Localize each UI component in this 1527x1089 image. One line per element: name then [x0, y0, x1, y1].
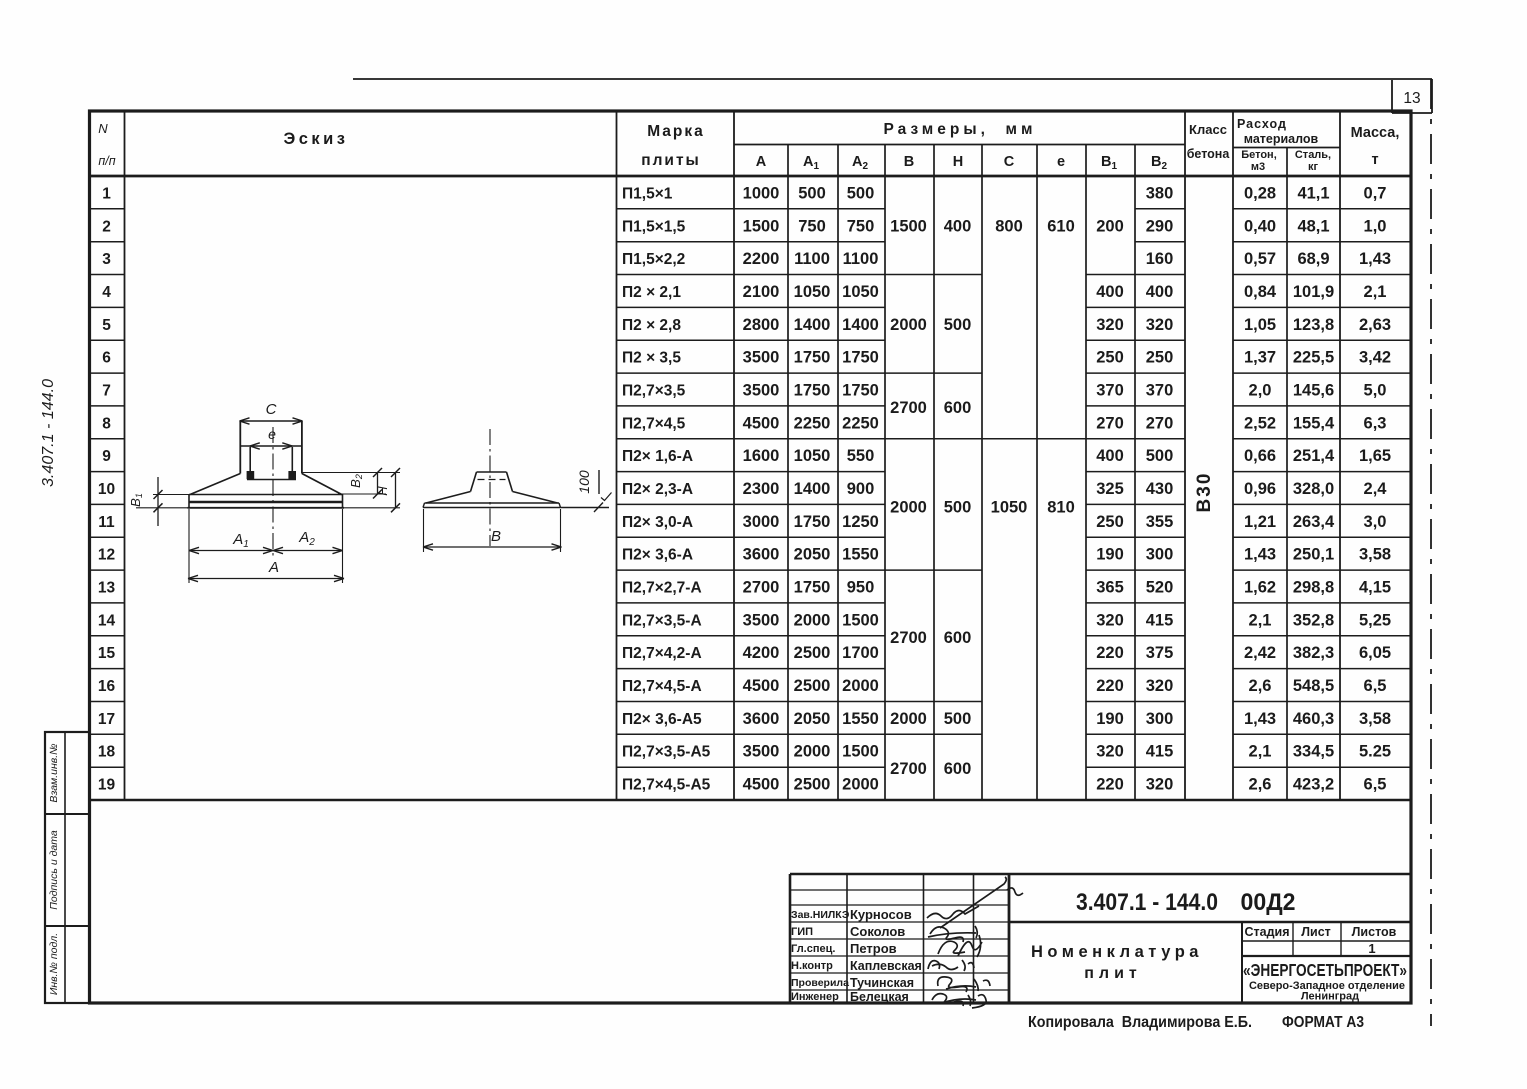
svg-text:750: 750: [798, 217, 826, 235]
svg-text:600: 600: [944, 399, 972, 417]
svg-text:м3: м3: [1251, 161, 1265, 173]
svg-text:6,5: 6,5: [1364, 776, 1387, 794]
svg-text:380: 380: [1146, 184, 1174, 202]
svg-text:14: 14: [98, 612, 116, 629]
svg-text:2,52: 2,52: [1244, 414, 1276, 432]
svg-text:Взам.инв.№: Взам.инв.№: [48, 743, 60, 802]
svg-text:225,5: 225,5: [1293, 349, 1334, 367]
svg-text:2700: 2700: [890, 760, 927, 778]
svg-text:П2,7×4,5-А: П2,7×4,5-А: [622, 678, 702, 695]
svg-text:355: 355: [1146, 513, 1174, 531]
svg-text:41,1: 41,1: [1297, 184, 1329, 202]
svg-text:П1,5×1,5: П1,5×1,5: [622, 218, 686, 235]
svg-text:Эскиз: Эскиз: [283, 130, 348, 148]
svg-text:П2× 3,6-А: П2× 3,6-А: [622, 547, 693, 564]
svg-text:В: В: [491, 528, 501, 545]
svg-text:1: 1: [1368, 941, 1375, 956]
svg-text:1,05: 1,05: [1244, 316, 1276, 334]
svg-text:П2,7×3,5: П2,7×3,5: [622, 382, 686, 399]
svg-text:бетона: бетона: [1187, 147, 1231, 161]
svg-text:19: 19: [98, 777, 116, 794]
svg-text:1250: 1250: [842, 513, 879, 531]
svg-text:220: 220: [1096, 677, 1124, 695]
svg-text:190: 190: [1096, 710, 1124, 728]
svg-text:П2,7×4,5-А5: П2,7×4,5-А5: [622, 777, 711, 794]
svg-text:3500: 3500: [743, 381, 780, 399]
svg-text:3500: 3500: [743, 349, 780, 367]
svg-text:П2,7×4,2-А: П2,7×4,2-А: [622, 645, 702, 662]
svg-text:Соколов: Соколов: [850, 924, 905, 939]
svg-text:Ленинград: Ленинград: [1301, 991, 1359, 1003]
svg-text:1,0: 1,0: [1364, 217, 1387, 235]
svg-text:145,6: 145,6: [1293, 381, 1334, 399]
svg-text:15: 15: [98, 645, 116, 662]
svg-text:2,0: 2,0: [1249, 381, 1272, 399]
svg-text:1,21: 1,21: [1244, 513, 1276, 531]
svg-text:5.25: 5.25: [1359, 743, 1391, 761]
svg-text:1: 1: [102, 185, 111, 202]
svg-text:1500: 1500: [842, 611, 879, 629]
svg-text:1550: 1550: [842, 546, 879, 564]
svg-text:П2,7×3,5-А5: П2,7×3,5-А5: [622, 744, 711, 761]
svg-text:423,2: 423,2: [1293, 776, 1334, 794]
svg-text:328,0: 328,0: [1293, 480, 1334, 498]
svg-text:300: 300: [1146, 546, 1174, 564]
svg-text:Гл.спец.: Гл.спец.: [791, 943, 835, 955]
svg-text:600: 600: [944, 629, 972, 647]
svg-text:Зав.НИЛКЭ: Зав.НИЛКЭ: [791, 909, 850, 921]
svg-text:18: 18: [98, 744, 116, 761]
svg-text:3600: 3600: [743, 710, 780, 728]
svg-text:320: 320: [1146, 776, 1174, 794]
svg-text:251,4: 251,4: [1293, 447, 1335, 465]
svg-text:П2 × 2,1: П2 × 2,1: [622, 284, 681, 301]
svg-text:334,5: 334,5: [1293, 743, 1334, 761]
svg-text:10: 10: [98, 481, 115, 498]
svg-text:2500: 2500: [794, 644, 831, 662]
svg-text:430: 430: [1146, 480, 1174, 498]
svg-text:400: 400: [1146, 283, 1174, 301]
svg-text:220: 220: [1096, 776, 1124, 794]
svg-text:2100: 2100: [743, 283, 780, 301]
svg-text:370: 370: [1146, 381, 1174, 399]
svg-text:С: С: [266, 401, 277, 418]
svg-text:Н: Н: [375, 486, 390, 496]
svg-text:0,28: 0,28: [1244, 184, 1276, 202]
svg-text:Белецкая: Белецкая: [850, 990, 909, 1004]
svg-text:1,37: 1,37: [1244, 349, 1276, 367]
svg-text:400: 400: [1096, 447, 1124, 465]
svg-text:Подпись и дата: Подпись и дата: [48, 830, 60, 910]
svg-text:2050: 2050: [794, 546, 831, 564]
svg-text:1750: 1750: [794, 381, 831, 399]
svg-text:48,1: 48,1: [1297, 217, 1329, 235]
svg-text:Инв.№ подл.: Инв.№ подл.: [48, 933, 60, 995]
svg-text:68,9: 68,9: [1297, 250, 1329, 268]
svg-text:е: е: [268, 426, 276, 442]
svg-text:4200: 4200: [743, 644, 780, 662]
svg-text:500: 500: [1146, 447, 1174, 465]
svg-text:П2,7×4,5: П2,7×4,5: [622, 415, 686, 432]
svg-text:2700: 2700: [890, 399, 927, 417]
svg-text:1700: 1700: [842, 644, 879, 662]
svg-text:325: 325: [1096, 480, 1124, 498]
svg-text:2,4: 2,4: [1364, 480, 1388, 498]
svg-text:155,4: 155,4: [1293, 414, 1335, 432]
svg-text:ФОРМАТ А3: ФОРМАТ А3: [1282, 1014, 1364, 1031]
svg-text:2000: 2000: [890, 316, 927, 334]
svg-text:1500: 1500: [743, 217, 780, 235]
svg-text:500: 500: [798, 184, 826, 202]
svg-text:1,62: 1,62: [1244, 579, 1276, 597]
svg-text:1,43: 1,43: [1244, 546, 1276, 564]
svg-text:16: 16: [98, 678, 116, 695]
svg-text:2,6: 2,6: [1249, 776, 1272, 794]
svg-text:Стадия: Стадия: [1244, 925, 1289, 939]
svg-text:382,3: 382,3: [1293, 644, 1334, 662]
svg-text:460,3: 460,3: [1293, 710, 1334, 728]
svg-text:N: N: [98, 121, 108, 136]
svg-text:0,40: 0,40: [1244, 217, 1276, 235]
svg-text:320: 320: [1146, 677, 1174, 695]
svg-text:3: 3: [102, 251, 111, 268]
svg-text:263,4: 263,4: [1293, 513, 1335, 531]
svg-text:плит: плит: [1084, 965, 1142, 982]
svg-text:2250: 2250: [794, 414, 831, 432]
svg-text:п/п: п/п: [98, 154, 115, 168]
svg-text:«ЭНЕРГОСЕТЬПРОЕКТ»: «ЭНЕРГОСЕТЬПРОЕКТ»: [1243, 960, 1407, 980]
svg-text:220: 220: [1096, 644, 1124, 662]
svg-text:2500: 2500: [794, 677, 831, 695]
svg-text:1550: 1550: [842, 710, 879, 728]
svg-text:В: В: [904, 154, 914, 170]
svg-text:Петров: Петров: [850, 941, 897, 956]
svg-text:250,1: 250,1: [1293, 546, 1334, 564]
svg-text:1,65: 1,65: [1359, 447, 1391, 465]
svg-text:2,42: 2,42: [1244, 644, 1276, 662]
svg-text:А: А: [756, 154, 767, 170]
svg-text:4: 4: [102, 284, 111, 301]
svg-text:520: 520: [1146, 579, 1174, 597]
svg-text:5,25: 5,25: [1359, 611, 1391, 629]
svg-text:Н: Н: [953, 154, 963, 170]
svg-text:0,57: 0,57: [1244, 250, 1276, 268]
svg-text:П2× 3,6-А5: П2× 3,6-А5: [622, 711, 702, 728]
svg-text:П1,5×1: П1,5×1: [622, 185, 673, 202]
svg-text:П2,7×2,7-А: П2,7×2,7-А: [622, 580, 702, 597]
svg-text:1,43: 1,43: [1244, 710, 1276, 728]
svg-text:1,43: 1,43: [1359, 250, 1391, 268]
svg-text:1100: 1100: [843, 250, 879, 268]
svg-text:П1,5×2,2: П1,5×2,2: [622, 251, 685, 268]
svg-text:1050: 1050: [794, 447, 831, 465]
svg-text:548,5: 548,5: [1293, 677, 1334, 695]
svg-text:3,0: 3,0: [1364, 513, 1387, 531]
svg-text:2250: 2250: [842, 414, 879, 432]
svg-text:4,15: 4,15: [1359, 579, 1391, 597]
svg-text:0,66: 0,66: [1244, 447, 1276, 465]
svg-text:352,8: 352,8: [1293, 611, 1334, 629]
svg-text:Проверила: Проверила: [791, 977, 849, 989]
svg-text:500: 500: [944, 710, 972, 728]
svg-text:400: 400: [1096, 283, 1124, 301]
svg-text:500: 500: [847, 184, 875, 202]
svg-text:2500: 2500: [794, 776, 831, 794]
svg-text:2000: 2000: [842, 677, 879, 695]
svg-text:9: 9: [102, 448, 111, 465]
svg-text:160: 160: [1146, 250, 1174, 268]
svg-text:1100: 1100: [794, 250, 830, 268]
svg-text:365: 365: [1096, 579, 1124, 597]
svg-text:е: е: [1057, 154, 1065, 170]
svg-text:1400: 1400: [794, 316, 831, 334]
svg-text:Инженер: Инженер: [791, 991, 839, 1003]
svg-text:1600: 1600: [743, 447, 780, 465]
svg-text:ГИП: ГИП: [791, 926, 813, 938]
svg-text:2,1: 2,1: [1249, 743, 1272, 761]
svg-text:6,5: 6,5: [1364, 677, 1387, 695]
svg-text:т: т: [1371, 152, 1378, 168]
svg-text:3,42: 3,42: [1359, 349, 1391, 367]
svg-text:П2 × 2,8: П2 × 2,8: [622, 317, 681, 334]
svg-text:400: 400: [944, 217, 972, 235]
svg-text:С: С: [1004, 154, 1015, 170]
svg-text:1500: 1500: [890, 217, 927, 235]
svg-text:3,58: 3,58: [1359, 710, 1391, 728]
svg-text:3.407.1 - 144.0: 3.407.1 - 144.0: [40, 379, 57, 487]
svg-text:5,0: 5,0: [1364, 381, 1387, 399]
svg-text:2000: 2000: [794, 743, 831, 761]
svg-text:1400: 1400: [842, 316, 879, 334]
svg-text:2000: 2000: [842, 776, 879, 794]
svg-text:370: 370: [1096, 381, 1124, 399]
svg-text:4500: 4500: [743, 677, 780, 695]
svg-text:610: 610: [1047, 217, 1075, 235]
svg-text:1750: 1750: [842, 381, 879, 399]
svg-text:7: 7: [102, 382, 111, 399]
svg-text:250: 250: [1096, 513, 1124, 531]
svg-text:2700: 2700: [890, 629, 927, 647]
svg-text:Номенклатура: Номенклатура: [1031, 943, 1203, 961]
svg-text:123,8: 123,8: [1293, 316, 1334, 334]
svg-text:8: 8: [102, 415, 111, 432]
svg-text:100: 100: [576, 470, 592, 494]
svg-text:3,58: 3,58: [1359, 546, 1391, 564]
svg-text:1000: 1000: [743, 184, 780, 202]
svg-text:250: 250: [1146, 349, 1174, 367]
svg-text:11: 11: [98, 514, 115, 531]
svg-text:800: 800: [995, 217, 1023, 235]
svg-text:300: 300: [1146, 710, 1174, 728]
svg-text:0,7: 0,7: [1364, 184, 1387, 202]
svg-text:6: 6: [102, 350, 111, 367]
svg-text:0,84: 0,84: [1244, 283, 1277, 301]
svg-text:Курносов: Курносов: [850, 907, 912, 922]
svg-text:плиты: плиты: [641, 152, 701, 169]
svg-text:П2,7×3,5-А: П2,7×3,5-А: [622, 612, 702, 629]
svg-text:3500: 3500: [743, 743, 780, 761]
svg-text:270: 270: [1146, 414, 1174, 432]
svg-text:950: 950: [847, 579, 875, 597]
svg-text:Каплевская: Каплевская: [850, 959, 922, 973]
svg-text:200: 200: [1096, 217, 1124, 235]
svg-text:1750: 1750: [794, 513, 831, 531]
svg-text:1400: 1400: [794, 480, 831, 498]
svg-text:2,63: 2,63: [1359, 316, 1391, 334]
svg-text:2300: 2300: [743, 480, 780, 498]
svg-text:298,8: 298,8: [1293, 579, 1334, 597]
svg-text:750: 750: [847, 217, 875, 235]
svg-text:4500: 4500: [743, 414, 780, 432]
svg-text:375: 375: [1146, 644, 1174, 662]
svg-text:3000: 3000: [743, 513, 780, 531]
svg-text:Лист: Лист: [1301, 925, 1331, 939]
svg-text:материалов: материалов: [1244, 132, 1319, 146]
svg-text:00Д2: 00Д2: [1241, 889, 1296, 916]
svg-text:2050: 2050: [794, 710, 831, 728]
svg-text:Листов: Листов: [1352, 925, 1397, 939]
svg-text:1050: 1050: [794, 283, 831, 301]
svg-text:1050: 1050: [991, 498, 1028, 516]
svg-text:Расход: Расход: [1237, 117, 1287, 131]
svg-text:320: 320: [1146, 316, 1174, 334]
svg-text:550: 550: [847, 447, 875, 465]
svg-text:190: 190: [1096, 546, 1124, 564]
svg-text:3500: 3500: [743, 611, 780, 629]
svg-text:1500: 1500: [842, 743, 879, 761]
svg-text:12: 12: [98, 547, 115, 564]
svg-text:П2× 2,3-А: П2× 2,3-А: [622, 481, 693, 498]
svg-text:0,96: 0,96: [1244, 480, 1276, 498]
svg-text:2000: 2000: [890, 710, 927, 728]
svg-text:2200: 2200: [743, 250, 780, 268]
svg-text:2: 2: [102, 218, 111, 235]
svg-text:3.407.1 - 144.0: 3.407.1 - 144.0: [1076, 889, 1218, 916]
svg-text:2,1: 2,1: [1364, 283, 1387, 301]
svg-text:810: 810: [1047, 498, 1075, 516]
svg-text:Сталь,: Сталь,: [1295, 149, 1331, 161]
svg-text:13: 13: [98, 580, 116, 597]
svg-text:Тучинская: Тучинская: [850, 976, 914, 990]
svg-text:Класс: Класс: [1189, 122, 1227, 137]
svg-text:2000: 2000: [794, 611, 831, 629]
svg-text:кг: кг: [1308, 161, 1319, 173]
svg-text:Бетон,: Бетон,: [1241, 149, 1277, 161]
svg-text:415: 415: [1146, 743, 1174, 761]
svg-text:17: 17: [98, 711, 115, 728]
svg-text:500: 500: [944, 498, 972, 516]
svg-text:250: 250: [1096, 349, 1124, 367]
svg-text:1750: 1750: [842, 349, 879, 367]
svg-text:А: А: [268, 559, 279, 576]
svg-text:500: 500: [944, 316, 972, 334]
svg-text:Размеры, мм: Размеры, мм: [884, 121, 1037, 138]
svg-text:290: 290: [1146, 217, 1174, 235]
svg-text:1750: 1750: [794, 349, 831, 367]
svg-text:4500: 4500: [743, 776, 780, 794]
svg-text:П2× 1,6-А: П2× 1,6-А: [622, 448, 693, 465]
svg-text:2,6: 2,6: [1249, 677, 1272, 695]
svg-text:600: 600: [944, 760, 972, 778]
svg-text:1750: 1750: [794, 579, 831, 597]
svg-text:270: 270: [1096, 414, 1124, 432]
svg-text:2800: 2800: [743, 316, 780, 334]
svg-text:П2 × 3,5: П2 × 3,5: [622, 350, 681, 367]
svg-text:П2× 3,0-А: П2× 3,0-А: [622, 514, 693, 531]
svg-text:13: 13: [1403, 90, 1420, 107]
svg-text:2000: 2000: [890, 498, 927, 516]
svg-text:Масса,: Масса,: [1351, 125, 1400, 141]
svg-text:Марка: Марка: [647, 123, 705, 140]
svg-text:3600: 3600: [743, 546, 780, 564]
svg-text:1050: 1050: [842, 283, 879, 301]
svg-text:320: 320: [1096, 743, 1124, 761]
svg-text:В30: В30: [1194, 472, 1215, 513]
svg-text:2700: 2700: [743, 579, 780, 597]
svg-text:900: 900: [847, 480, 875, 498]
svg-text:101,9: 101,9: [1293, 283, 1334, 301]
svg-text:2,1: 2,1: [1249, 611, 1272, 629]
svg-text:6,3: 6,3: [1364, 414, 1387, 432]
svg-text:5: 5: [102, 317, 111, 334]
svg-text:6,05: 6,05: [1359, 644, 1391, 662]
svg-text:Н.контр: Н.контр: [791, 960, 833, 972]
svg-text:415: 415: [1146, 611, 1174, 629]
svg-text:320: 320: [1096, 611, 1124, 629]
svg-text:320: 320: [1096, 316, 1124, 334]
svg-text:Копировала Владимирова Е.Б.: Копировала Владимирова Е.Б.: [1028, 1014, 1252, 1031]
